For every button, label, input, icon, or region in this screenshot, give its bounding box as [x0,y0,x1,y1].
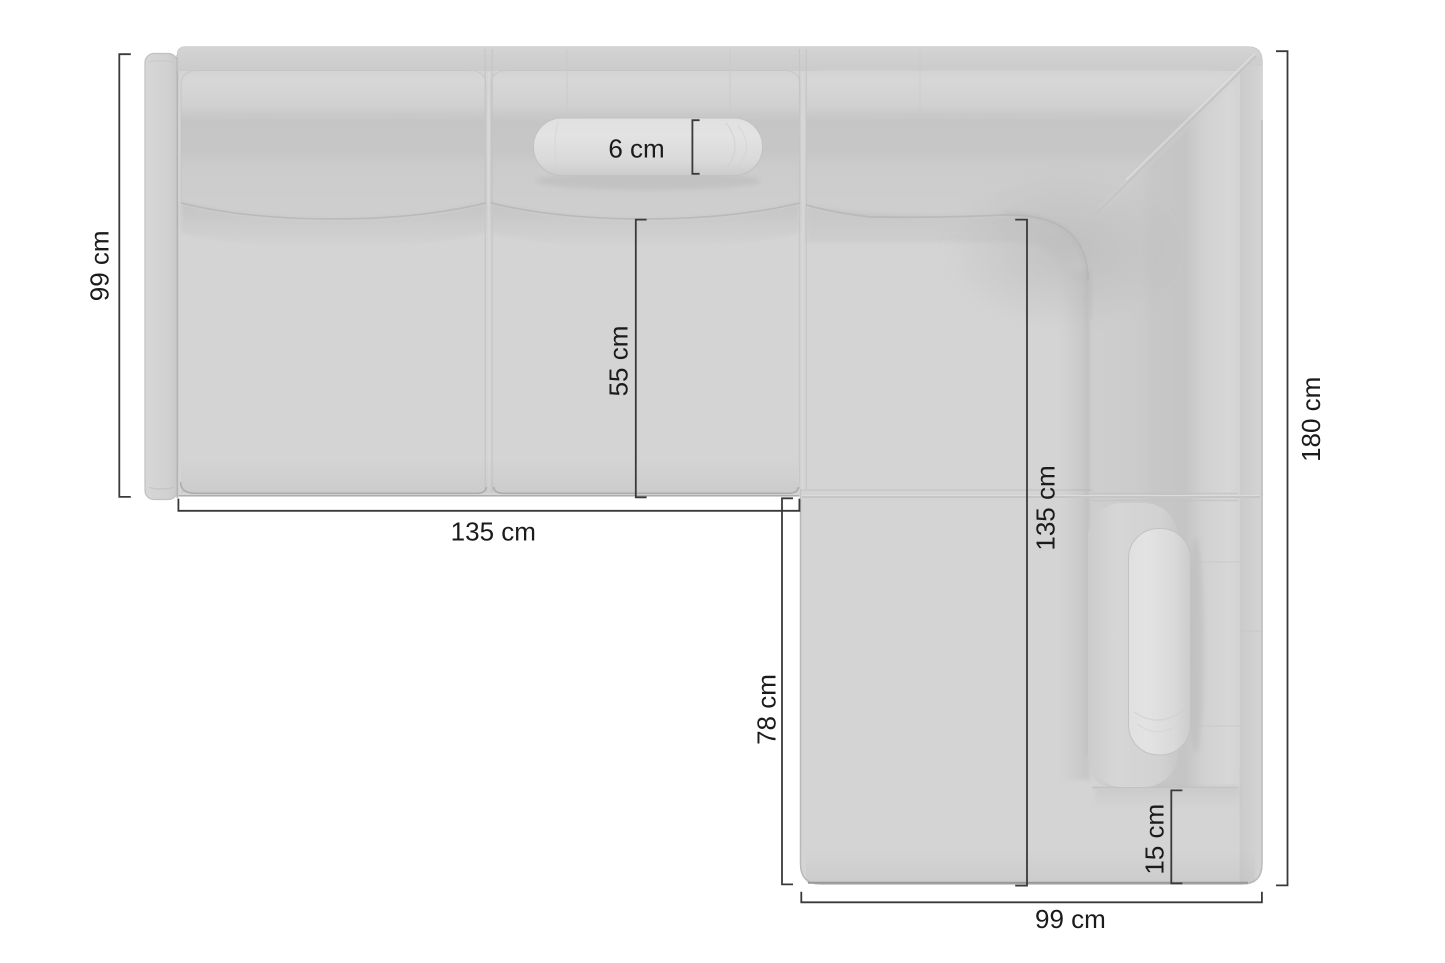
svg-text:78 cm: 78 cm [752,674,782,745]
svg-text:180 cm: 180 cm [1296,377,1326,462]
svg-text:99 cm: 99 cm [85,230,115,301]
svg-text:15 cm: 15 cm [1140,804,1170,875]
svg-text:99 cm: 99 cm [1035,904,1106,934]
svg-text:135 cm: 135 cm [1030,465,1060,550]
svg-text:135 cm: 135 cm [451,517,536,547]
svg-text:55 cm: 55 cm [604,326,634,397]
svg-text:6 cm: 6 cm [608,134,664,164]
